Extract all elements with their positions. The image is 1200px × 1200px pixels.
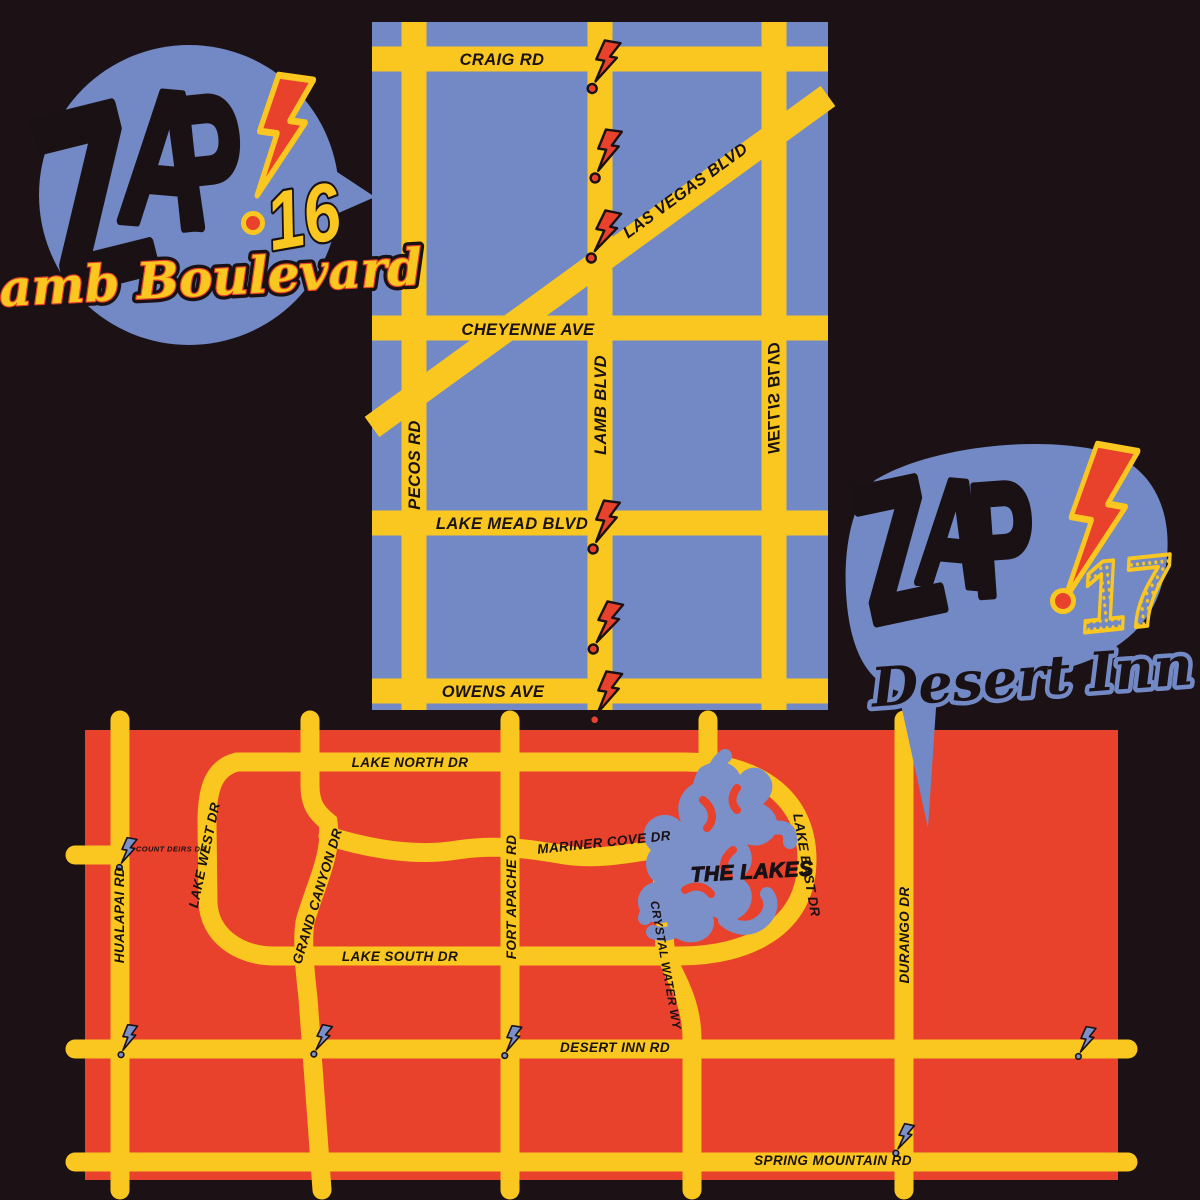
logo-zap-16: Z A P 16 Lamb Boulevard Lamb Boulevard	[20, 25, 385, 355]
exclamation-dot	[244, 214, 263, 233]
street-label-hualapai-rd: HUALAPAI RD	[112, 867, 127, 963]
street-label-nellis-blvd: NELLIS BLVD	[764, 342, 782, 454]
zap-letter-p: P	[964, 448, 1040, 630]
street-label-spring-mountain-rd: SPRING MOUNTAIN RD	[754, 1153, 912, 1168]
map-lamb-boulevard: CRAIG RD LAS VEGAS BLVD CHEYENNE AVE LAK…	[372, 22, 828, 710]
street-label-lake-mead-blvd: LAKE MEAD BLVD	[436, 515, 588, 533]
street-label-fort-apache-rd: FORT APACHE RD	[504, 835, 519, 960]
street-label-lake-south-dr: LAKE SOUTH DR	[342, 949, 458, 964]
logo-zap-17: Z A P 17 Desert Inn Desert Inn	[830, 425, 1200, 835]
street-label-count-deirs-dr: COUNT DEIRS DR	[136, 845, 206, 854]
street-label-craig-rd: CRAIG RD	[460, 51, 545, 69]
zap-maps-poster: CRAIG RD LAS VEGAS BLVD CHEYENNE AVE LAK…	[0, 0, 1200, 1200]
street-label-durango-dr: DURANGO DR	[897, 887, 912, 984]
street-label-cheyenne-ave: CHEYENNE AVE	[461, 321, 595, 339]
street-label-desert-inn-rd: DESERT INN RD	[560, 1040, 670, 1055]
street-label-owens-ave: OWENS AVE	[442, 683, 545, 701]
street-label-pecos-rd: PECOS RD	[406, 420, 424, 509]
street-label-lake-north-dr: LAKE NORTH DR	[352, 755, 469, 770]
exclamation-dot	[1053, 591, 1074, 612]
street-label-lamb-blvd: LAMB BLVD	[592, 355, 610, 455]
